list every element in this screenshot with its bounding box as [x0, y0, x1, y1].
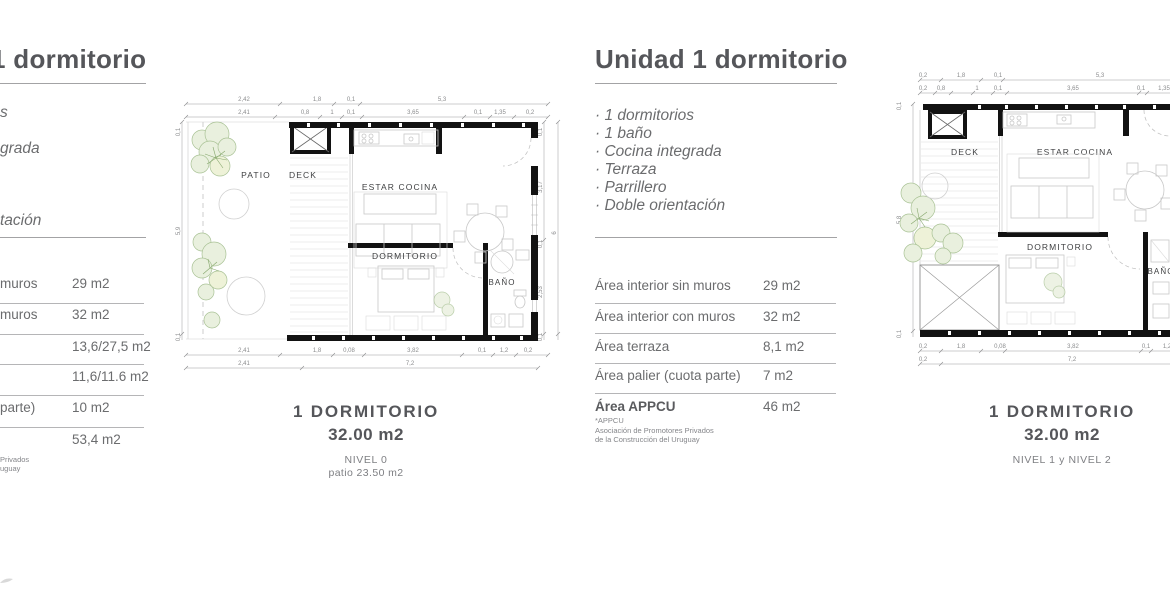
row-separator: [595, 393, 836, 394]
room-label-bano: BAÑO: [488, 278, 515, 287]
deck-planks: [290, 158, 348, 332]
room-label-deck: DECK: [951, 147, 979, 157]
toilet-tank: [514, 290, 526, 296]
patio-area: PATIO: [186, 122, 289, 339]
area-row-value: 32 m2: [763, 309, 801, 324]
appcu-footnote: de la Construcción del Uruguay: [595, 435, 700, 444]
feature-bullet: · Cocina integrada: [595, 143, 722, 161]
area-row-value: 53,4 m2: [72, 432, 121, 447]
area-row-value: 11,6/11.6 m2: [72, 369, 149, 384]
deck-area: DECK: [900, 110, 1002, 330]
sink: [1057, 115, 1071, 124]
floorplan-nivel0: 2,42 1,8 0,1 5,3 2,41 0,8 1 0,1 3,65 0,1…: [172, 92, 570, 382]
dim-label: 7,2: [406, 361, 415, 367]
dim-label: 1: [975, 86, 979, 92]
area-row-label: muros: [0, 307, 38, 322]
row-separator: [0, 334, 144, 335]
left-bullet-fragment: grada: [0, 140, 40, 158]
dim-label: 1,8: [313, 348, 322, 354]
center-title-rule: [595, 83, 837, 84]
walls: [287, 122, 538, 341]
rug: [1007, 154, 1099, 232]
row-separator: [0, 395, 144, 396]
bath-sink: [1153, 282, 1169, 294]
floorplan-nivel12: 0,2 1,8 0,1 5,3 0,2 0,8 1 0,1 3,65 0,1 1…: [893, 68, 1170, 370]
pillow: [1009, 258, 1031, 268]
room-label-estar: ESTAR COCINA: [362, 182, 438, 192]
area-row-value: 13,6/27,5 m2: [72, 339, 151, 354]
estar-cocina: ESTAR COCINA: [1003, 112, 1170, 232]
door-arc: [1108, 237, 1140, 269]
dim-label: 1,8: [313, 97, 322, 103]
dim-label: 2,53: [538, 286, 544, 298]
laundry: [509, 314, 523, 327]
dim-label: 0,2: [919, 73, 928, 79]
room-label-deck: DECK: [289, 170, 317, 180]
dim-label: 7,2: [1068, 357, 1077, 363]
dim-label: 0,08: [343, 348, 355, 354]
pillow: [382, 269, 403, 279]
area-row-label: muros: [0, 276, 38, 291]
dim-label: 0,2: [919, 357, 928, 363]
dim-label: 1,8: [957, 344, 966, 350]
dim-label: 1,2: [500, 348, 509, 354]
dim-label: 6: [552, 231, 558, 235]
left-title-rule: [0, 83, 146, 84]
sink: [404, 134, 419, 144]
dim-label: 3,17: [538, 181, 544, 193]
area-row-label: Área terraza: [595, 339, 669, 354]
glass-wall: [1000, 136, 1003, 232]
dim-label: 5,3: [1096, 73, 1105, 79]
deck-area: DECK: [289, 126, 353, 335]
closet: [366, 316, 446, 330]
pillow: [1036, 258, 1058, 268]
dormitorio: DORMITORIO: [366, 251, 454, 330]
laundry: [1153, 304, 1169, 318]
dim-label: 0,1: [1142, 344, 1151, 350]
area-row-value: 8,1 m2: [763, 339, 804, 354]
dim-label: 1,8: [957, 73, 966, 79]
area-row-value: 29 m2: [72, 276, 110, 291]
appcu-footnote: *APPCU: [595, 416, 624, 425]
kitchen-counter: [1003, 112, 1095, 128]
door-arc: [503, 138, 531, 166]
vegetation: [191, 122, 236, 328]
appcu-row-value: 46 m2: [763, 399, 801, 414]
area-row-value: 32 m2: [72, 307, 110, 322]
dining-chairs: [1114, 163, 1170, 221]
media-table: [1019, 158, 1089, 178]
dim-label: 1: [330, 110, 334, 116]
row-separator: [0, 303, 144, 304]
row-separator: [595, 303, 836, 304]
dim-label: 2,41: [238, 110, 250, 116]
floorplan-brochure-page: { "left_panel": { "title": "1 dormitorio…: [0, 0, 1170, 601]
dim-label: 1,35: [1158, 86, 1170, 92]
dim-label: 5,3: [438, 97, 447, 103]
dim-label: 0,1: [176, 332, 182, 341]
dim-label: 0,1: [478, 348, 487, 354]
area-row-label: Área interior sin muros: [595, 278, 731, 293]
door-arc: [1144, 110, 1170, 136]
dim-label: 1,35: [494, 110, 506, 116]
plan-b-caption-area: 32.00 m2: [942, 425, 1170, 445]
pillow: [408, 269, 429, 279]
dim-label: 2,42: [238, 97, 250, 103]
plan-b-caption-level: NIVEL 1 y NIVEL 2: [942, 454, 1170, 466]
room-label-dormitorio: DORMITORIO: [372, 251, 438, 261]
dim-label: 0,1: [994, 73, 1003, 79]
dim-label: 0,2: [526, 110, 535, 116]
plan-a-caption: 1 DORMITORIO 32.00 m2 NIVEL 0 patio 23.5…: [246, 402, 486, 479]
bed: [378, 266, 434, 312]
dim-label: 0,08: [994, 344, 1006, 350]
nightstand: [368, 268, 376, 277]
dim-label: 2,41: [238, 361, 250, 367]
plan-a-caption-level: NIVEL 0: [246, 454, 486, 466]
center-panel-title: Unidad 1 dormitorio: [595, 44, 848, 75]
dim-label: 0,8: [937, 86, 946, 92]
feature-bullet: · Terraza: [595, 161, 656, 179]
toilet: [515, 296, 525, 308]
row-separator: [595, 363, 836, 364]
area-row-label: Área interior con muros: [595, 309, 735, 324]
dim-label: 3,65: [1067, 86, 1079, 92]
sofa: [1011, 186, 1093, 218]
closet: [1007, 312, 1075, 324]
dim-label: 0,1: [474, 110, 483, 116]
row-separator: [0, 427, 144, 428]
plan-a-caption-area: 32.00 m2: [246, 425, 486, 445]
center-spec-panel: Unidad 1 dormitorio · 1 dormitorios · 1 …: [595, 0, 838, 601]
vegetation: [900, 183, 963, 264]
dim-label: 0,1: [347, 97, 356, 103]
appcu-row-label: Área APPCU: [595, 399, 676, 414]
area-row-label: Área palier (cuota parte): [595, 368, 741, 383]
dim-label: 0,1: [897, 329, 903, 338]
left-spec-panel: 1 dormitorio s grada tación muros 29 m2 …: [0, 0, 146, 601]
appcu-footnote-fragment: Privados: [0, 455, 29, 464]
room-label-patio: PATIO: [241, 170, 271, 180]
fridge: [422, 132, 434, 144]
dim-label: 0,2: [524, 348, 533, 354]
dim-label: 0,1: [897, 101, 903, 110]
area-row-value: 10 m2: [72, 400, 110, 415]
dim-label: 3,82: [407, 348, 419, 354]
planter-circle: [227, 277, 265, 315]
room-label-dormitorio: DORMITORIO: [1027, 242, 1093, 252]
planter-circle: [219, 189, 249, 219]
dim-label: 2,41: [238, 348, 250, 354]
appcu-footnote-fragment: uguay: [0, 464, 20, 473]
dim-label: 0,1: [1137, 86, 1146, 92]
dim-label: 0,1: [538, 127, 544, 136]
dormitorio: DORMITORIO: [1006, 242, 1093, 324]
plan-b-caption: 1 DORMITORIO 32.00 m2 NIVEL 1 y NIVEL 2: [942, 402, 1170, 466]
plan-b-caption-title: 1 DORMITORIO: [942, 402, 1170, 422]
bedroom-plant: [434, 292, 454, 316]
dim-label: 0,1: [538, 239, 544, 248]
left-section-rule: [0, 237, 146, 238]
corner-mark: [0, 576, 20, 586]
dim-label: 0,1: [176, 127, 182, 136]
dim-label: 3,65: [407, 110, 419, 116]
center-section-rule: [595, 237, 837, 238]
nightstand: [1067, 257, 1075, 266]
media-table: [364, 194, 436, 214]
feature-bullet: · 1 dormitorios: [595, 107, 694, 125]
dim-label: 3,82: [1067, 344, 1079, 350]
left-panel-title: 1 dormitorio: [0, 44, 146, 75]
row-separator: [595, 333, 836, 334]
dim-label: 0,1: [538, 332, 544, 341]
dim-label: 5,9: [176, 226, 182, 235]
feature-bullet: · Parrillero: [595, 179, 666, 197]
feature-bullet: · 1 baño: [595, 125, 652, 143]
bath-sink: [516, 250, 529, 260]
nightstand: [436, 268, 444, 277]
left-bullet-fragment: s: [0, 104, 8, 122]
bedroom-plant: [1044, 273, 1065, 298]
dining-table: [1126, 171, 1164, 209]
dim-label: 1,2: [1163, 344, 1170, 350]
appcu-footnote: Asociación de Promotores Privados: [595, 426, 714, 435]
area-row-value: 7 m2: [763, 368, 793, 383]
row-separator: [0, 364, 144, 365]
dim-label: 0,2: [919, 344, 928, 350]
feature-bullet: · Doble orientación: [595, 197, 725, 215]
dim-label: 0,1: [994, 86, 1003, 92]
area-row-value: 29 m2: [763, 278, 801, 293]
plan-a-caption-title: 1 DORMITORIO: [246, 402, 486, 422]
left-bullet-fragment: tación: [0, 212, 41, 230]
bano: BAÑO: [1147, 240, 1170, 318]
dim-label: 0,8: [301, 110, 310, 116]
area-row-label: parte): [0, 400, 35, 415]
dim-label: 0,2: [919, 86, 928, 92]
dimension-labels: 2,42 1,8 0,1 5,3 2,41 0,8 1 0,1 3,65 0,1…: [176, 97, 558, 367]
dim-label: 0,1: [347, 110, 356, 116]
plan-a-caption-extra: patio 23.50 m2: [246, 467, 486, 479]
bano: BAÑO: [488, 250, 529, 327]
room-label-bano: BAÑO: [1147, 267, 1170, 276]
room-label-estar: ESTAR COCINA: [1037, 147, 1113, 157]
